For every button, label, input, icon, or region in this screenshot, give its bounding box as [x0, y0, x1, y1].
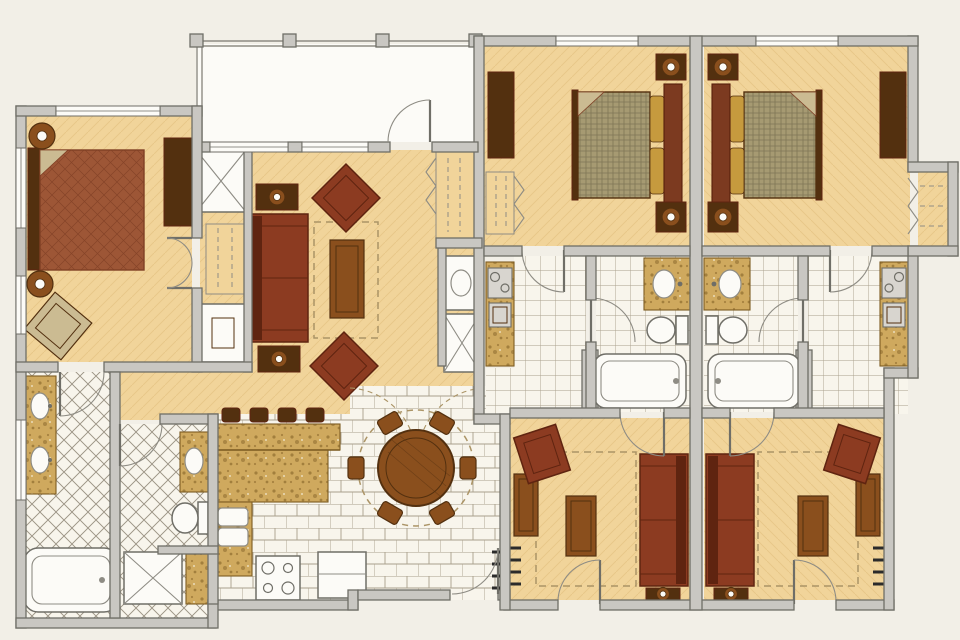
bar-stool [306, 408, 324, 422]
floor-plan-page [0, 0, 960, 640]
kitchen-sink [218, 508, 248, 526]
breakfast-bar [214, 424, 340, 450]
studio-right-unit [704, 46, 910, 604]
balcony [190, 34, 482, 142]
balcony-floor [196, 44, 478, 142]
railing-post [190, 34, 203, 47]
toilet [172, 503, 198, 533]
armoire [164, 138, 192, 226]
coffee-table [330, 240, 364, 318]
round-dining-table [378, 430, 454, 506]
hall-floor [120, 372, 208, 420]
bar-stool [250, 408, 268, 422]
floor-plan-image [0, 0, 960, 640]
coat-closet [436, 152, 478, 238]
studio-right-closet [908, 172, 948, 246]
range [256, 556, 300, 600]
bar-stool [222, 408, 240, 422]
railing-post [376, 34, 389, 47]
railing-post [283, 34, 296, 47]
kitchen-sink [218, 528, 248, 546]
bar-stool [278, 408, 296, 422]
tv-cabinet [198, 304, 246, 362]
wardrobe-closet [206, 224, 246, 294]
toilet-tank [198, 502, 208, 534]
counter [214, 450, 328, 502]
bed-headboard [28, 148, 40, 270]
master-bed [40, 150, 144, 270]
